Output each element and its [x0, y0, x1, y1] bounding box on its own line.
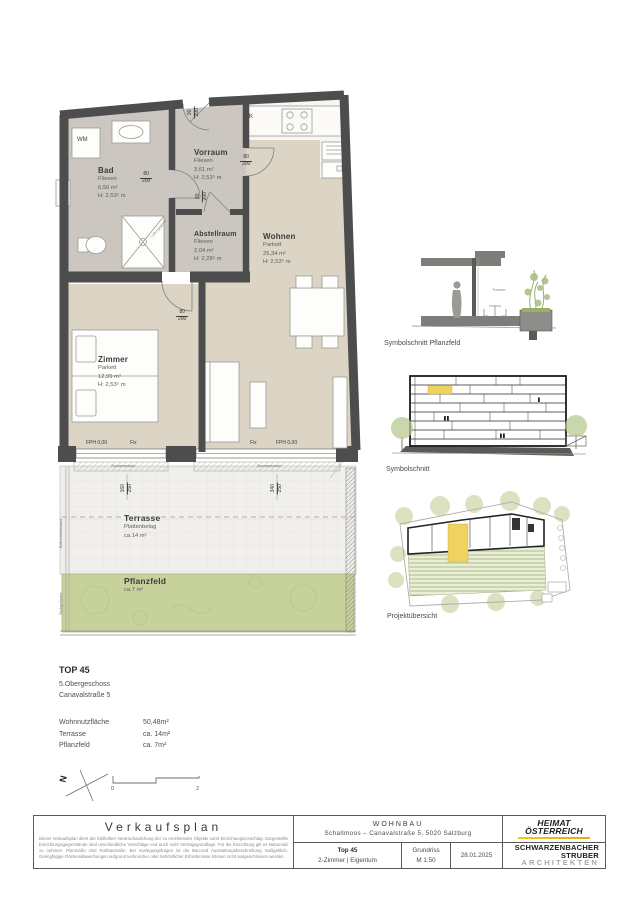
site-shed [548, 582, 566, 592]
kitchen-label: K [249, 114, 253, 120]
highlighted-unit [428, 386, 452, 395]
site-highlighted-unit [448, 524, 468, 562]
window-dim-right: 340250 [271, 482, 284, 494]
dining-table [290, 288, 344, 336]
plan-drawing [0, 0, 637, 900]
wall-pier-center [166, 446, 196, 462]
chair4 [322, 336, 338, 348]
washing-machine [72, 128, 100, 158]
site-plan-diagram [388, 491, 570, 613]
room-label-wohnen: Wohnen Parkett25,34 m²H: 2,53⁵ m [263, 232, 296, 267]
room-label-abstellraum: Abstellraum Fliesen2,04 m²H: 2,28⁵ m [194, 231, 237, 264]
site-core2 [528, 524, 534, 532]
section-base [400, 446, 574, 456]
scale-bar [113, 776, 199, 783]
site-building [408, 514, 544, 554]
toilet [86, 237, 106, 254]
planting-area [62, 574, 354, 632]
caption-section: Symbolschnitt [386, 466, 430, 473]
section-pflanzfeld-label: Pflanzfeld [524, 318, 538, 322]
unit-title: TOP 45 [59, 665, 259, 675]
title-block-logos: HEIMAT ÖSTERREICH SCHWARZENBACHER STRUBE… [503, 816, 605, 868]
chair3 [296, 336, 312, 348]
caption-section-pflanzfeld: Symbolschnitt Pflanzfeld [384, 340, 460, 347]
architects-logo: SCHWARZENBACHER STRUBER ARCHITEKTEN [503, 843, 605, 868]
window-dim-left: 160250 [121, 482, 134, 494]
sideboard [250, 382, 266, 428]
washing-machine-label: WM [77, 137, 88, 143]
metric-row: Wohnnutzfläche50,48m² [59, 717, 259, 729]
door-dim-wohnen: 80200 [240, 155, 252, 168]
title-block-project: WOHNBAU Schallmoos – Canavalstraße 5, 50… [294, 816, 503, 868]
facade-column [472, 258, 476, 318]
unit-metrics: Wohnnutzfläche50,48m² Terrasseca. 14m² P… [59, 717, 259, 752]
site-core [512, 518, 520, 530]
fix-right: Fix [250, 440, 257, 446]
project-address: Schallmoos – Canavalstraße 5, 5020 Salzb… [324, 830, 471, 837]
metric-row: Pflanzfeldca. 7m² [59, 740, 259, 752]
planter-drain [529, 331, 537, 340]
terrace-furniture [484, 306, 506, 316]
room-label-vorraum: Vorraum Fliesen3,61 m²H: 2,53⁵ m [194, 148, 228, 183]
project-type: WOHNBAU [373, 821, 424, 828]
unit-address: Canavalstraße 5 [59, 690, 259, 701]
date-cell: 28.01.2025 [451, 843, 502, 868]
disclaimer-text: Dieser Verkaufsplan dient der bildhaften… [39, 836, 288, 860]
room-label-terrasse: Terrasse Plattenbelagca.14 m² [124, 513, 160, 540]
person-figure [452, 281, 462, 318]
unit-cell: Top 45 2-Zimmer | Eigentum [294, 843, 402, 868]
metric-row: Terrasseca. 14m² [59, 729, 259, 741]
room-label-zimmer: Zimmer Parkett12,99 m²H: 2,53⁵ m [98, 355, 128, 390]
room-name: Abstellraum [194, 231, 237, 238]
terrace-roof-slab [475, 251, 505, 258]
railing-note: Stabgeländer [59, 592, 63, 615]
drawing-cell: Grundriss M 1:50 [402, 843, 451, 868]
building-section-diagram [391, 376, 587, 456]
room-label-pflanzfeld: Pflanzfeld ca.7 m² [124, 576, 166, 595]
sunshade-right-label: Sonnenschutz [238, 464, 300, 468]
door-dim-entry: 90200 [188, 106, 201, 118]
title-block: Verkaufsplan Dieser Verkaufsplan dient d… [33, 815, 606, 869]
partition-note: Balkontrennwand [59, 519, 63, 548]
north-arrow [66, 770, 108, 801]
floor-slab [421, 316, 527, 326]
door-dim-zimmer: 80200 [176, 310, 188, 323]
title-block-plan-type: Verkaufsplan Dieser Verkaufsplan dient d… [34, 816, 294, 868]
plan-sheet: Bad Fliesen6,50 m²H: 2,53⁵ m Vorraum Fli… [0, 0, 637, 900]
logo-underline [518, 837, 591, 839]
sunshade-left-label: Sonnenschutz [95, 464, 151, 468]
sofa [203, 362, 239, 442]
fph-right: FPH 0,00 [276, 440, 297, 446]
door-dim-bad: 80200 [140, 172, 152, 185]
fph-left: FPH 0,00 [86, 440, 107, 446]
chair2 [322, 276, 338, 288]
room-name: Pflanzfeld [124, 576, 166, 586]
caption-overview: Projektübersicht [387, 613, 437, 620]
site-dots [558, 526, 566, 571]
room-name: Wohnen [263, 232, 296, 241]
room-name: Bad [98, 166, 126, 175]
washbasin [112, 121, 150, 143]
fix-left: Fix [130, 440, 137, 446]
unit-info: TOP 45 5.Obergeschoss Canavalstraße 5 Wo… [59, 665, 259, 752]
pillow [76, 336, 96, 362]
room-name: Vorraum [194, 148, 228, 157]
heimat-oesterreich-logo: HEIMAT ÖSTERREICH [503, 816, 605, 843]
ceiling-slab [421, 258, 501, 266]
terrace-grid [60, 466, 356, 574]
site-shed2 [542, 594, 552, 602]
room-name: Zimmer [98, 355, 128, 364]
plant-leaves [525, 273, 551, 307]
pillow2 [76, 390, 96, 416]
right-screen-wall [346, 468, 355, 632]
cabinet [333, 377, 347, 448]
door-dim-abstellraum: 80200 [196, 190, 209, 202]
room-label-bad: Bad Fliesen6,50 m²H: 2,53⁵ m [98, 166, 126, 201]
room-name: Terrasse [124, 513, 160, 523]
section-terrasse-label: Terrasse [492, 288, 505, 292]
plan-type: Verkaufsplan [39, 820, 288, 834]
scale-end: 2 [196, 786, 199, 792]
scale-start: 0 [111, 786, 114, 792]
section-pflanzfeld-diagram [412, 251, 556, 340]
kitchen-counter [248, 106, 344, 136]
chair [296, 276, 312, 288]
unit-floor: 5.Obergeschoss [59, 679, 259, 690]
